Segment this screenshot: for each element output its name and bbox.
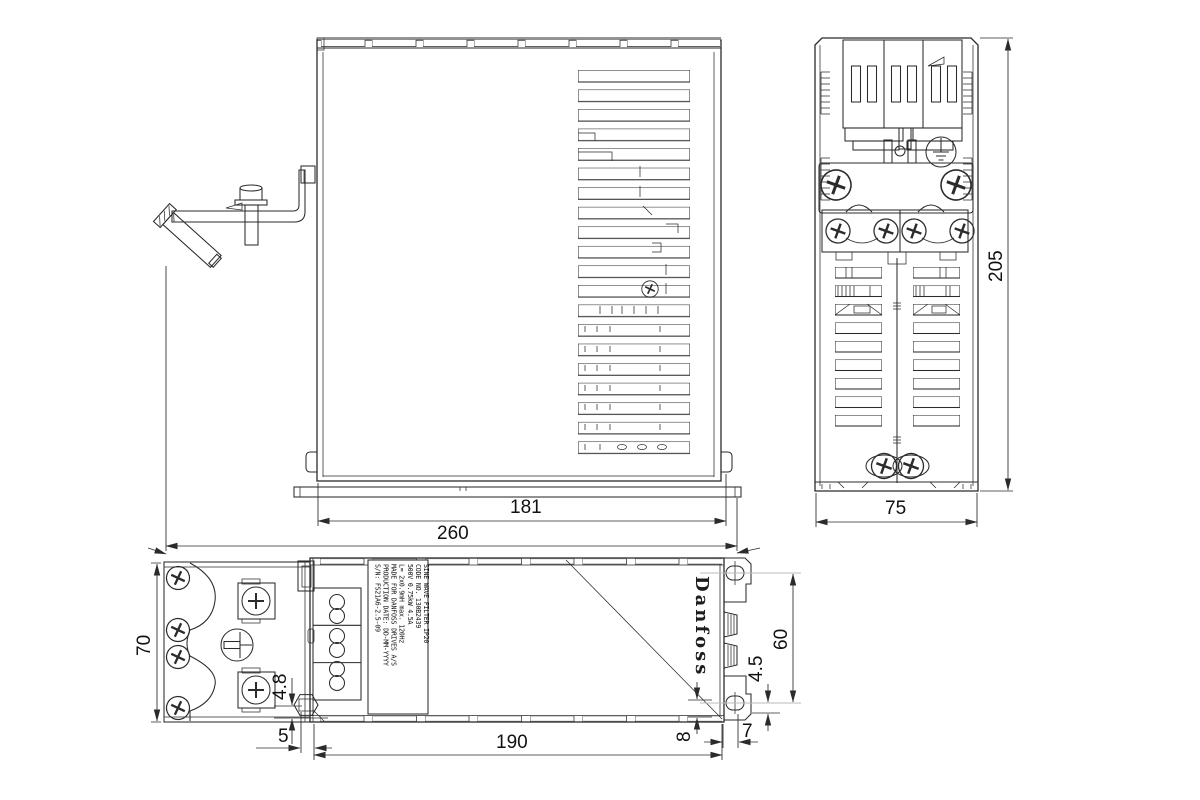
dim-205-text: 205 xyxy=(986,250,1007,282)
terminal-screw-icon xyxy=(163,693,194,724)
top-view: SINE WAVE FILTER IP20 CODE NO. 130B2439 … xyxy=(134,548,801,760)
dim-5-text: 5 xyxy=(278,726,289,747)
dimension-205: 205 xyxy=(980,38,1013,491)
base-plate xyxy=(294,487,741,497)
connector-bump xyxy=(724,643,737,668)
brand-logo: Danfoss xyxy=(691,576,712,677)
dim-4.5-text: 4.5 xyxy=(746,656,767,682)
dim-181-text: 181 xyxy=(510,497,542,518)
label-line: S/N: FS21A6-2.5-09 xyxy=(373,564,381,632)
dimension-75: 75 xyxy=(816,493,977,527)
vent-slats xyxy=(578,70,690,456)
terminal-hole-strip xyxy=(298,561,361,700)
technical-drawing: 181 260 xyxy=(0,0,1200,800)
wedge-mark xyxy=(928,57,944,66)
cable-gland xyxy=(154,204,226,272)
mounting-bracket xyxy=(172,166,315,222)
screw-icon xyxy=(817,166,855,204)
terminal-screw-icon xyxy=(163,615,194,646)
dimension-181: 181 xyxy=(318,474,726,526)
label-line: SINE WAVE FILTER IP20 xyxy=(422,564,430,643)
heatsink-comb xyxy=(821,72,830,114)
mounting-tab-top xyxy=(724,558,751,602)
dim-4.8-text: 4.8 xyxy=(270,674,291,700)
ground-screw xyxy=(221,629,253,661)
end-view: 205 75 xyxy=(815,38,1013,527)
bottom-edge-slots xyxy=(320,716,722,722)
side-view: 181 260 xyxy=(154,38,741,551)
dim-8-text: 8 xyxy=(674,731,695,742)
dim-70-text: 70 xyxy=(134,635,155,656)
dim-7-text: 7 xyxy=(742,721,753,742)
terminal-screw-icon xyxy=(163,642,194,673)
screw-icon xyxy=(937,166,975,204)
leader-arrow xyxy=(737,548,760,553)
dimension-8: 8 xyxy=(674,682,712,742)
mid-panel xyxy=(817,137,975,213)
dim-260-text: 260 xyxy=(437,523,469,544)
wedge-mark xyxy=(226,203,242,210)
base-band xyxy=(815,482,978,489)
step-block xyxy=(845,128,962,150)
terminal-screw-icon xyxy=(823,216,854,247)
heatsink-comb xyxy=(963,72,972,114)
terminal-strip xyxy=(822,205,977,264)
top-rail-slots xyxy=(321,40,720,48)
trimmer-screw xyxy=(238,579,275,623)
dimension-70: 70 xyxy=(134,563,161,722)
label-line: 500V 0.75kW 4.5A xyxy=(406,564,414,625)
product-label: SINE WAVE FILTER IP20 CODE NO. 130B2439 … xyxy=(368,560,430,714)
dim-75-text: 75 xyxy=(885,498,906,519)
top-terminal-block xyxy=(843,40,962,128)
label-line: MADE FOR DANFOSS DRIVES A/S xyxy=(390,564,398,666)
dim-190-text: 190 xyxy=(496,732,528,753)
drawing-canvas: 181 260 xyxy=(0,0,1200,800)
terminal-screw-icon xyxy=(871,216,902,247)
dimension-4-5: 4.5 xyxy=(746,656,780,731)
connector-bump xyxy=(724,612,737,637)
bracket-bolt xyxy=(235,185,267,245)
terminal-screw-icon xyxy=(899,216,930,247)
dim-60-text: 60 xyxy=(771,629,792,650)
label-line: CODE NO. 130B2439 xyxy=(414,564,422,628)
dimension-60: 60 xyxy=(771,574,793,702)
leader-arrow xyxy=(148,548,166,554)
label-line: L= 2x0.9mH max. 120Hz xyxy=(398,564,406,643)
dimension-190: 190 xyxy=(314,724,722,760)
label-line: PRODUCTION DATE: DD-MM-YYYY xyxy=(382,564,390,666)
